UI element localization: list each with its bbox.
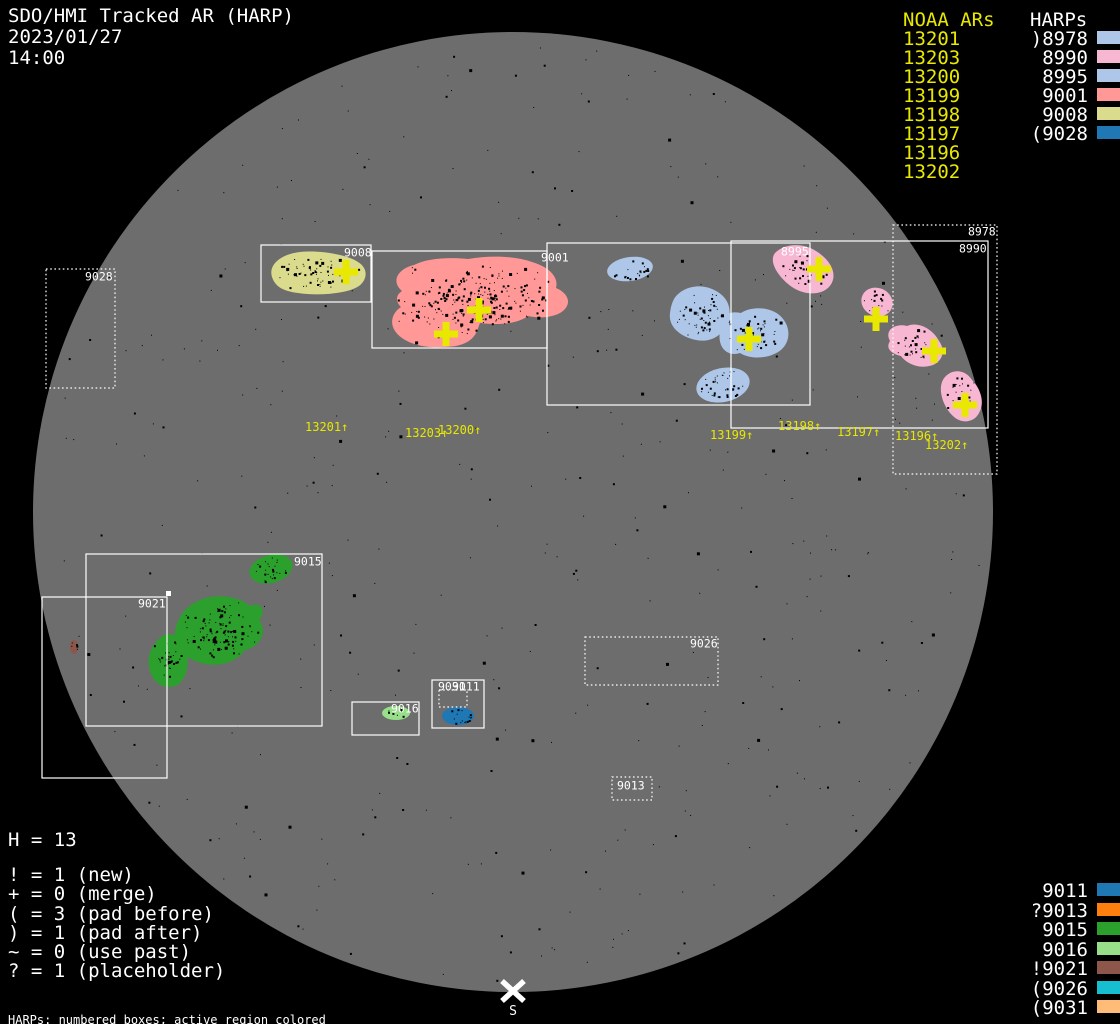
harp-box-label-9015: 9015 xyxy=(294,555,322,569)
harp-item-label: (9028 xyxy=(1031,125,1088,144)
harp-item-label: ?9013 xyxy=(1031,902,1088,921)
harp-box-label-8995: 8995 xyxy=(781,245,809,259)
harp-box-label-9028: 9028 xyxy=(85,270,113,284)
harp-color-swatch xyxy=(1097,942,1120,955)
harp-color-swatch xyxy=(1097,50,1120,63)
noaa-ar-item: 13202 xyxy=(903,163,960,182)
harp-box-label-9013: 9013 xyxy=(617,779,645,793)
time-label: 14:00 xyxy=(8,48,294,69)
noaa-ar-label-13202: 13202↑ xyxy=(925,438,968,452)
south-pole-label: S xyxy=(509,1004,517,1019)
harp-color-swatch xyxy=(1097,31,1120,44)
harp-item-label: 9016 xyxy=(1042,941,1088,960)
harp-color-swatch xyxy=(1097,883,1120,896)
harp-list-top: )89788990899590019008(9028 xyxy=(1000,30,1120,144)
harp-color-swatch xyxy=(1097,922,1120,935)
noaa-ar-label-13201: 13201↑ xyxy=(305,420,348,434)
app-title: SDO/HMI Tracked AR (HARP) xyxy=(8,6,294,27)
noaa-ar-label-13200: 13200↑ xyxy=(438,423,481,437)
harp-color-swatch xyxy=(1097,126,1120,139)
harp-color-swatch xyxy=(1097,107,1120,120)
date-label: 2023/01/27 xyxy=(8,27,294,48)
title-block: SDO/HMI Tracked AR (HARP) 2023/01/27 14:… xyxy=(8,6,294,69)
harp-color-swatch xyxy=(1097,981,1120,994)
flag-legend-item: ( = 3 (pad before) xyxy=(8,905,225,924)
harp-box-label-8990: 8990 xyxy=(959,242,987,256)
harp-box-label-9016: 9016 xyxy=(391,702,419,716)
sun-disk xyxy=(33,32,993,992)
harp-item: !9021 xyxy=(990,960,1120,980)
footnotes: HARPs: numbered boxes; active region col… xyxy=(8,990,427,1024)
harp-color-swatch xyxy=(1097,69,1120,82)
harp-color-swatch xyxy=(1097,903,1120,916)
harp-color-swatch xyxy=(1097,88,1120,101)
harp-box-label-9008: 9008 xyxy=(344,246,372,260)
noaa-ar-label-13198: 13198↑ xyxy=(778,419,821,433)
flag-legend-item: + = 0 (merge) xyxy=(8,885,225,904)
flag-legend-item: ? = 1 (placeholder) xyxy=(8,962,225,981)
harp-box-label-8978: 8978 xyxy=(968,225,996,239)
harp-item-label: (9031 xyxy=(1031,999,1088,1018)
noaa-ar-list: 1320113203132001319913198131971319613202 xyxy=(903,30,960,182)
noaa-ar-label-13199: 13199↑ xyxy=(710,428,753,442)
harp-item-label: (9026 xyxy=(1031,980,1088,999)
harp-box-label-9001: 9001 xyxy=(541,251,569,265)
harp-corner-dot xyxy=(166,591,171,596)
noaa-ar-label-13197: 13197↑ xyxy=(837,425,880,439)
harp-color-swatch xyxy=(1097,1000,1120,1013)
harp-count: H = 13 xyxy=(8,830,77,851)
harp-color-swatch xyxy=(1097,961,1120,974)
harp-item: (9028 xyxy=(1000,125,1120,144)
solar-harp-plot: 9028900890018995899089789015902190169011… xyxy=(0,0,1120,1024)
harp-box-label-9021: 9021 xyxy=(138,597,166,611)
harp-item: 9015 xyxy=(990,921,1120,941)
harp-item-label: !9021 xyxy=(1031,960,1088,979)
harp-list-bottom: 9011?901390159016!9021(9026(9031 xyxy=(990,882,1120,1019)
harp-box-label-9026: 9026 xyxy=(690,637,718,651)
harp-box-label-9031: 9031 xyxy=(438,680,466,694)
harp-item-label: 9015 xyxy=(1042,921,1088,940)
harp-item: 9011 xyxy=(990,882,1120,902)
footnote-harps: HARPs: numbered boxes; active region col… xyxy=(8,1014,427,1024)
flag-legend: ! = 1 (new)+ = 0 (merge)( = 3 (pad befor… xyxy=(8,866,225,982)
harp-item: (9031 xyxy=(990,999,1120,1019)
harp-item-label: 9011 xyxy=(1042,882,1088,901)
